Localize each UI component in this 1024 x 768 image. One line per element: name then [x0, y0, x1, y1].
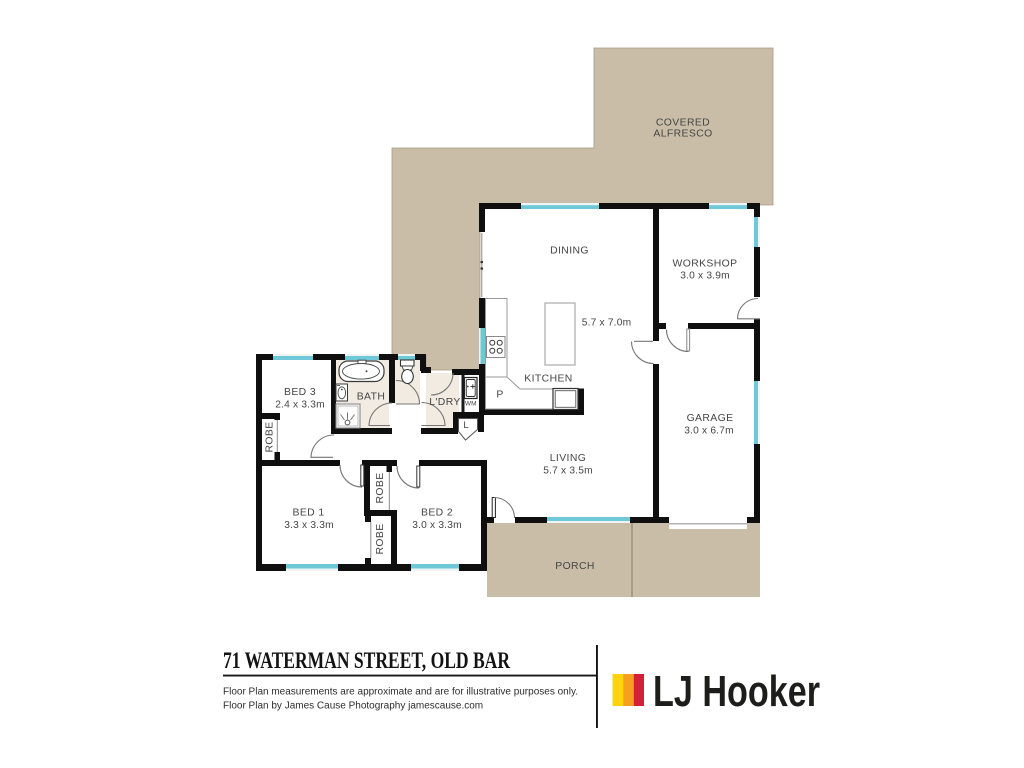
svg-text:L'DRY: L'DRY	[429, 397, 461, 408]
svg-text:ROBE: ROBE	[375, 472, 386, 503]
svg-text:WORKSHOP: WORKSHOP	[673, 259, 738, 270]
svg-text:ROBE: ROBE	[265, 421, 276, 452]
svg-text:BATH: BATH	[357, 392, 386, 403]
svg-text:BED 2: BED 2	[421, 508, 453, 519]
svg-text:BED 3: BED 3	[284, 387, 316, 398]
svg-text:L: L	[463, 420, 468, 431]
svg-text:2.4 x 3.3m: 2.4 x 3.3m	[275, 400, 325, 411]
svg-text:GARAGE: GARAGE	[687, 413, 734, 424]
svg-text:DINING: DINING	[550, 246, 589, 257]
svg-text:ALFRESCO: ALFRESCO	[653, 129, 712, 140]
svg-text:5.7 x 3.5m: 5.7 x 3.5m	[543, 466, 593, 477]
svg-text:ROBE: ROBE	[375, 523, 386, 554]
svg-text:3.0 x 6.7m: 3.0 x 6.7m	[684, 426, 734, 437]
svg-text:WM: WM	[465, 401, 477, 408]
svg-text:PORCH: PORCH	[555, 561, 595, 572]
svg-text:3.0 x 3.3m: 3.0 x 3.3m	[412, 520, 462, 531]
svg-text:71 WATERMAN STREET, OLD BAR: 71 WATERMAN STREET, OLD BAR	[223, 648, 510, 673]
svg-text:LIVING: LIVING	[550, 453, 586, 464]
svg-text:3.3 x 3.3m: 3.3 x 3.3m	[284, 520, 334, 531]
svg-text:Floor Plan measurements are ap: Floor Plan measurements are approximate …	[223, 687, 578, 698]
svg-text:P: P	[496, 390, 503, 401]
svg-text:5.7 x 7.0m: 5.7 x 7.0m	[582, 318, 632, 329]
svg-text:BED 1: BED 1	[292, 508, 324, 519]
svg-text:KITCHEN: KITCHEN	[524, 374, 572, 385]
svg-text:3.0 x 3.9m: 3.0 x 3.9m	[680, 271, 730, 282]
svg-text:LJ Hooker: LJ Hooker	[653, 667, 820, 716]
svg-text:COVERED: COVERED	[656, 118, 710, 129]
svg-text:Floor Plan by James Cause Phot: Floor Plan by James Cause Photography ja…	[223, 701, 483, 712]
